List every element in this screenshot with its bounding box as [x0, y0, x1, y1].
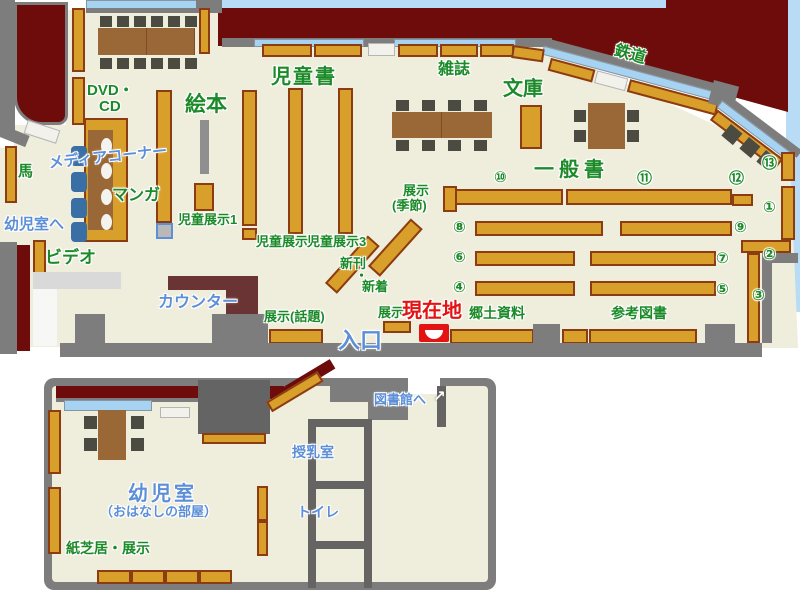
- label-video: ビデオ: [45, 249, 96, 268]
- monitor-icon: [101, 214, 112, 230]
- counter: [33, 272, 121, 289]
- label-toire: トイレ: [297, 505, 339, 520]
- label-junyushitsu: 授乳室: [292, 445, 334, 460]
- label-counter: カウンター: [158, 294, 238, 312]
- pillar: [533, 324, 560, 344]
- bookshelf: [732, 194, 753, 206]
- pillar: [705, 324, 735, 344]
- wall: [0, 0, 15, 130]
- label-dvd-cd: CD: [99, 99, 121, 116]
- shelf-number-9: ⑨: [734, 220, 747, 237]
- shelf-number-1: ①: [763, 200, 776, 217]
- corridor-block: [198, 380, 270, 434]
- bookshelf: [199, 8, 210, 54]
- bookshelf: [262, 44, 312, 57]
- pillar: [212, 314, 268, 344]
- top-window-strip: [222, 0, 666, 8]
- pillar: [75, 314, 105, 344]
- bookshelf: [590, 251, 716, 266]
- label-zasshi: 雑誌: [438, 61, 470, 79]
- bookshelf: [269, 329, 323, 344]
- bookshelf: [589, 329, 697, 344]
- bookshelf: [242, 228, 257, 240]
- bookshelf: [5, 146, 17, 203]
- chair: [396, 100, 409, 111]
- monitor-icon: [101, 189, 112, 205]
- chair: [422, 100, 435, 111]
- label-kamishibai: 紙芝居・展示: [66, 541, 150, 556]
- label-tenji-kisetsu: 展示: [403, 184, 429, 198]
- chair: [131, 416, 144, 429]
- label-tenji-wadai: 展示(話題): [264, 310, 325, 324]
- bookshelf: [288, 88, 303, 234]
- bookshelf: [475, 251, 575, 266]
- chair: [396, 140, 409, 151]
- shelf-number-8: ⑧: [453, 220, 466, 237]
- bookshelf: [202, 433, 266, 444]
- label-tenji-kisetsu: (季節): [392, 199, 427, 213]
- chair: [131, 438, 144, 451]
- bookshelf: [242, 90, 257, 226]
- label-sanko-tosho: 参考図書: [611, 306, 667, 321]
- floor-area: [33, 289, 57, 346]
- bookshelf: [475, 221, 603, 236]
- shelf-number-7: ⑦: [716, 251, 729, 268]
- chair: [627, 130, 639, 142]
- chair: [84, 438, 97, 451]
- chair: [168, 16, 180, 27]
- shelf-number-2: ②: [763, 247, 776, 264]
- chair: [71, 172, 87, 192]
- chair: [574, 110, 586, 122]
- chair: [422, 140, 435, 151]
- bookshelf: [562, 329, 588, 344]
- label-genzaichi: 現在地: [402, 300, 462, 322]
- label-kyodo-shiryo: 郷土資料: [469, 306, 525, 321]
- bookshelf: [383, 321, 411, 333]
- chair: [151, 58, 163, 69]
- bookshelf: [475, 281, 575, 296]
- chair: [474, 100, 487, 111]
- display-case: [160, 407, 190, 418]
- bookshelf: [257, 521, 268, 556]
- bookshelf: [620, 221, 732, 236]
- table-divider: [441, 112, 442, 138]
- shelf-number-5: ⑤: [716, 282, 729, 299]
- chair: [134, 16, 146, 27]
- label-shinchaku: 新着: [362, 280, 388, 294]
- bookshelf: [450, 329, 534, 344]
- chair: [134, 58, 146, 69]
- chair: [100, 58, 112, 69]
- chair: [627, 110, 639, 122]
- chair: [100, 16, 112, 27]
- table: [98, 410, 126, 460]
- bookshelf: [398, 44, 438, 57]
- bookshelf: [257, 486, 268, 521]
- label-bunko: 文庫: [503, 78, 543, 100]
- table: [588, 103, 625, 149]
- label-ohanashi: （おはなしの部屋）: [100, 505, 217, 519]
- bookshelf: [566, 189, 732, 205]
- label-manga: マンガ: [112, 187, 160, 205]
- arrow-up-right-icon: ↗: [433, 389, 446, 406]
- table: [392, 112, 492, 138]
- chair: [448, 140, 461, 151]
- bookshelf: [455, 189, 563, 205]
- table-divider: [146, 28, 147, 55]
- chair: [185, 16, 197, 27]
- shelf-number-6: ⑥: [453, 250, 466, 267]
- shelf-number-12: ⑫: [729, 171, 744, 188]
- chair: [448, 100, 461, 111]
- outside-wall: [17, 245, 30, 351]
- label-jidosho: 児童書: [271, 66, 337, 88]
- label-ippansho: 一般書: [534, 159, 609, 181]
- bookshelf: [131, 570, 165, 584]
- label-jido-tenji1: 児童展示1: [178, 213, 237, 227]
- label-jido-tenji3: 児童展示3: [307, 235, 366, 249]
- room-wall: [308, 419, 372, 427]
- shelf-number-4: ④: [453, 280, 466, 297]
- label-toshokan-e: 図書館へ: [374, 393, 426, 407]
- label-uma: 馬: [18, 164, 33, 181]
- label-iriguchi: 入口: [338, 329, 382, 353]
- bookshelf: [781, 186, 795, 240]
- wall: [0, 242, 17, 354]
- chair: [117, 58, 129, 69]
- label-yojishitsu: 幼児室: [128, 483, 197, 505]
- shelf-number-10: ⑩: [494, 170, 507, 187]
- bookshelf: [72, 8, 85, 72]
- bookshelf: [520, 105, 542, 149]
- library-floor-map: DVD・ CD 絵本 児童書 雑誌 文庫 一般書 鉄道 メディアコーナー マンガ…: [0, 0, 800, 590]
- bookshelf: [165, 570, 199, 584]
- chair: [151, 16, 163, 27]
- room-wall: [308, 541, 372, 549]
- current-location-marker: [419, 324, 449, 342]
- chair: [71, 222, 87, 242]
- entrance-wall: [60, 343, 762, 357]
- bookshelf: [48, 487, 61, 554]
- chair: [474, 140, 487, 151]
- chair: [185, 58, 197, 69]
- display-case: [368, 43, 395, 56]
- bookshelf: [781, 152, 795, 181]
- marker-bowl: [425, 330, 443, 339]
- display-stand: [200, 120, 209, 174]
- shelf-number-3: ③: [752, 288, 765, 305]
- chair: [168, 58, 180, 69]
- chair: [84, 416, 97, 429]
- chair: [71, 198, 87, 218]
- label-tenji: 展示: [378, 306, 404, 320]
- chair: [574, 130, 586, 142]
- label-yojishitsu-e: 幼児室へ: [4, 217, 64, 234]
- display-stand: [194, 183, 214, 211]
- bookshelf: [338, 88, 353, 234]
- room-wall: [364, 419, 372, 588]
- shelf-number-11: ⑪: [637, 171, 652, 188]
- bookshelf: [199, 570, 232, 584]
- bookshelf: [440, 44, 478, 57]
- bookshelf: [480, 44, 514, 57]
- bookshelf: [97, 570, 131, 584]
- label-ehon: 絵本: [185, 93, 227, 116]
- room-wall: [308, 481, 372, 489]
- chair: [117, 16, 129, 27]
- outside-wall: [14, 2, 68, 125]
- bookshelf: [590, 281, 716, 296]
- shelf-number-13: ⑬: [762, 156, 777, 173]
- bookshelf: [314, 44, 362, 57]
- display-stand: [156, 223, 173, 239]
- bookshelf: [48, 410, 61, 474]
